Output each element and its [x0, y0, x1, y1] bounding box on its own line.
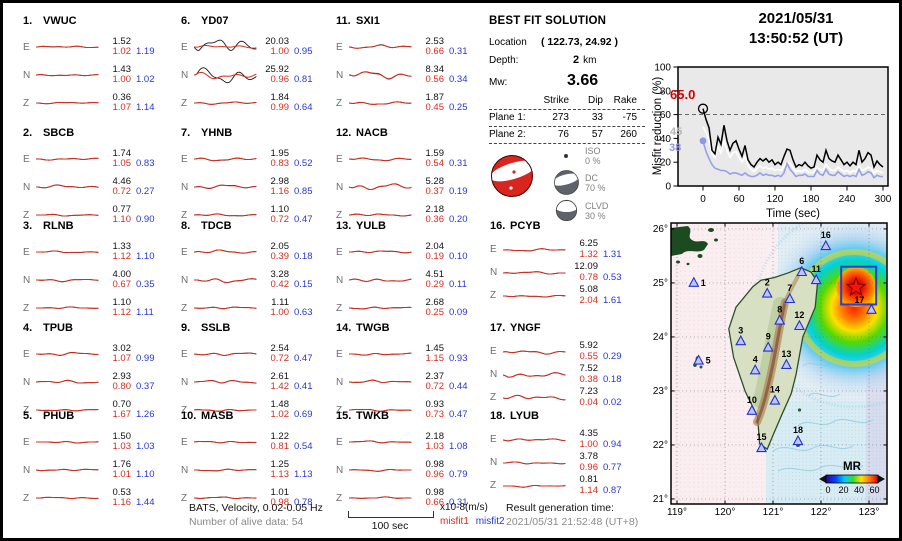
- misfit1-value: 1.07: [104, 354, 131, 365]
- misfit1-value: 0.54: [417, 159, 444, 170]
- time-scalebar: [348, 511, 434, 518]
- svg-text:60: 60: [869, 485, 879, 495]
- station-name: YD07: [201, 15, 229, 27]
- waveform-trace: [194, 33, 258, 61]
- waveform-values: 1.741.050.83: [104, 149, 155, 170]
- misfit1-value: 0.56: [417, 75, 444, 86]
- waveform-values: 2.370.720.44: [417, 372, 468, 393]
- waveform-trace: [194, 238, 258, 266]
- focal-mechanism-beachball: [489, 152, 535, 200]
- svg-text:0: 0: [665, 182, 671, 193]
- iso-symbol: [551, 151, 581, 161]
- bats-solution-figure: 1.VWUCE1.521.021.19N1.431.001.02Z0.361.0…: [0, 0, 902, 541]
- misfit1-value: 0.72: [417, 382, 444, 393]
- waveform-values: 1.331.121.10: [104, 242, 155, 263]
- misfit2-value: 1.44: [136, 498, 155, 509]
- waveform-trace: [36, 484, 100, 512]
- misfit1-value: 0.81: [262, 442, 289, 453]
- waveform-row: N1.431.001.02: [23, 61, 175, 89]
- component-label: N: [490, 457, 503, 468]
- misfit2-legend: misfit2: [476, 516, 505, 527]
- map-station-number: 10: [747, 395, 757, 405]
- svg-text:120: 120: [767, 194, 784, 205]
- strike-dip-rake-table: Strike Dip Rake Plane 1: 273 33 -75 Plan…: [489, 93, 645, 144]
- misfit2-value: 1.10: [136, 252, 155, 263]
- svg-text:120°: 120°: [715, 507, 736, 518]
- result-time-label: Result generation time:: [506, 502, 614, 514]
- station-name: VWUC: [43, 15, 77, 27]
- misfit2-value: 1.10: [136, 470, 155, 481]
- map-station-number: 14: [770, 385, 780, 395]
- waveform-values: 1.220.810.54: [262, 432, 313, 453]
- depth-label: Depth:: [489, 55, 541, 66]
- misfit1-value: 1.00: [104, 75, 131, 86]
- depth-unit: km: [583, 55, 596, 66]
- station-block: 6.YD07E20.031.000.95N25.920.960.81Z1.840…: [181, 15, 333, 117]
- component-label: N: [181, 182, 194, 193]
- component-label: E: [336, 349, 349, 360]
- filter-info: BATS, Velocity, 0.02-0.05 Hz: [189, 502, 323, 514]
- station-block: 10.MASBE1.220.810.54N1.251.131.13Z1.010.…: [181, 410, 333, 512]
- misfit2-value: 0.37: [136, 382, 155, 393]
- component-label: N: [23, 377, 36, 388]
- waveform-row: Z0.811.140.87: [490, 474, 642, 497]
- waveform-trace: [194, 456, 258, 484]
- waveform-values: 3.280.420.15: [262, 270, 313, 291]
- col-strike: Strike: [535, 95, 569, 106]
- amplitude-value: 7.52: [571, 364, 598, 375]
- waveform-row: N3.280.420.15: [181, 266, 333, 294]
- map-station-number: 1: [701, 278, 706, 288]
- component-label: E: [336, 154, 349, 165]
- station-number: 7.: [181, 127, 201, 139]
- waveform-values: 2.930.800.37: [104, 372, 155, 393]
- waveform-trace: [349, 238, 413, 266]
- station-number: 17.: [490, 322, 510, 334]
- waveform-trace: [349, 294, 413, 322]
- waveform-values: 7.230.040.02: [571, 387, 622, 408]
- station-block: 16.PCYBE6.251.321.31N12.090.780.53Z5.082…: [490, 220, 642, 307]
- waveform-row: N2.930.800.37: [23, 368, 175, 396]
- waveform-values: 7.520.380.18: [571, 364, 622, 385]
- dc-symbol: [551, 169, 581, 196]
- misfit2-value: 0.99: [136, 354, 155, 365]
- misfit2-value: 0.93: [449, 354, 468, 365]
- svg-text:122°: 122°: [811, 507, 832, 518]
- waveform-trace: [349, 266, 413, 294]
- map-station-number: 7: [787, 283, 792, 293]
- map-station-number: 18: [793, 425, 803, 435]
- component-label: E: [336, 247, 349, 258]
- component-label: N: [23, 182, 36, 193]
- waveform-row: E1.521.021.19: [23, 33, 175, 61]
- station-name: SSLB: [201, 322, 230, 334]
- panel-title: BEST FIT SOLUTION: [489, 15, 645, 27]
- misfit2-value: 1.31: [603, 250, 622, 261]
- waveform-trace: [503, 472, 567, 500]
- component-label: E: [181, 349, 194, 360]
- misfit1-value: 1.15: [417, 354, 444, 365]
- station-name: NACB: [356, 127, 388, 139]
- component-label: E: [181, 247, 194, 258]
- component-label: N: [336, 465, 349, 476]
- station-number: 14.: [336, 322, 356, 334]
- station-name: RLNB: [43, 220, 74, 232]
- misfit2-value: 0.95: [294, 47, 313, 58]
- svg-text:100: 100: [654, 63, 671, 74]
- station-name: MASB: [201, 410, 233, 422]
- misfit1-value: 1.05: [104, 159, 131, 170]
- station-block: 18.LYUBE4.351.000.94N3.780.960.77Z0.811.…: [490, 410, 642, 497]
- misfit1-value: 1.00: [262, 47, 289, 58]
- component-label: N: [336, 182, 349, 193]
- iso-pct: 0 %: [585, 156, 601, 166]
- component-label: E: [23, 437, 36, 448]
- svg-text:26°: 26°: [653, 224, 668, 235]
- waveform-trace: [36, 89, 100, 117]
- station-number: 9.: [181, 322, 201, 334]
- waveform-trace: [36, 428, 100, 456]
- station-block: 9.SSLBE2.540.720.47N2.611.420.41Z1.481.0…: [181, 322, 333, 424]
- waveform-values: 4.460.720.27: [104, 177, 155, 198]
- component-label: E: [490, 244, 503, 255]
- result-time-value: 2021/05/31 21:52:48 (UT+8): [506, 516, 638, 528]
- misfit2-value: 1.19: [136, 47, 155, 58]
- col-rake: Rake: [603, 95, 637, 106]
- waveform-row: Z7.230.040.02: [490, 386, 642, 409]
- misfit1-value: 0.99: [262, 103, 289, 114]
- station-header: 3.RLNB: [23, 220, 175, 236]
- map-canvas: 123456789101112131415161718 MR 0204060: [671, 216, 902, 504]
- misfit1-value: 1.01: [104, 470, 131, 481]
- station-block: 5.PHUBE1.501.031.03N1.761.011.10Z0.531.1…: [23, 410, 175, 512]
- map-station-number: 4: [753, 354, 758, 364]
- svg-text:20: 20: [838, 485, 848, 495]
- component-label: N: [23, 275, 36, 286]
- waveform-trace: [36, 173, 100, 201]
- component-label: E: [181, 154, 194, 165]
- station-header: 14.TWGB: [336, 322, 488, 338]
- waveform-values: 1.870.450.25: [417, 93, 468, 114]
- waveform-values: 20.031.000.95: [262, 37, 313, 58]
- map-station-number: 15: [756, 432, 766, 442]
- station-name: SBCB: [43, 127, 74, 139]
- waveform-trace: [194, 428, 258, 456]
- misfit2-value: 0.81: [294, 75, 313, 86]
- waveform-values: 1.840.990.64: [262, 93, 313, 114]
- misfit1-value: 1.16: [104, 498, 131, 509]
- amplitude-value: 4.35: [571, 429, 598, 440]
- waveform-row: N4.460.720.27: [23, 173, 175, 201]
- misfit1-value: 1.16: [262, 187, 289, 198]
- waveform-row: E2.530.660.31: [336, 33, 488, 61]
- misfit2-value: 0.29: [603, 352, 622, 363]
- svg-text:24°: 24°: [653, 332, 668, 343]
- waveform-row: Z0.531.161.44: [23, 484, 175, 512]
- waveform-trace: [349, 456, 413, 484]
- clvd-pct: 30 %: [585, 211, 606, 221]
- station-header: 17.YNGF: [490, 322, 642, 338]
- waveform-values: 1.761.011.10: [104, 460, 155, 481]
- misfit2-value: 0.85: [294, 187, 313, 198]
- misfit2-value: 0.11: [449, 280, 467, 291]
- station-name: YULB: [356, 220, 386, 232]
- map-station-number: 12: [794, 310, 804, 320]
- best-fit-solution-panel: BEST FIT SOLUTION Location ( 122.73, 24.…: [489, 15, 645, 225]
- component-label: Z: [490, 392, 503, 403]
- clvd-label: CLVD: [585, 201, 608, 211]
- misfit1-value: 0.04: [571, 398, 598, 409]
- waveform-values: 5.280.370.19: [417, 177, 468, 198]
- start-value-white: 45: [670, 126, 682, 138]
- waveform-trace: [36, 61, 100, 89]
- misfit2-value: 0.79: [449, 470, 468, 481]
- amplitude-value: 3.78: [571, 452, 598, 463]
- event-time: 13:50:52 (UT): [691, 29, 901, 49]
- component-label: E: [23, 42, 36, 53]
- misfit2-value: 0.47: [294, 354, 313, 365]
- misfit2-value: 0.27: [136, 187, 155, 198]
- misfit1-value: 0.72: [104, 187, 131, 198]
- station-header: 15.TWKB: [336, 410, 488, 426]
- waveform-row: E1.741.050.83: [23, 145, 175, 173]
- waveform-row: Z2.680.250.09: [336, 294, 488, 322]
- waveform-trace: [349, 484, 413, 512]
- misfit2-value: 0.83: [136, 159, 155, 170]
- misfit1-value: 1.00: [262, 308, 289, 319]
- station-number: 1.: [23, 15, 43, 27]
- component-label: E: [336, 437, 349, 448]
- misfit2-value: 0.19: [449, 187, 468, 198]
- start-value-blue: 38: [669, 142, 681, 154]
- map-station-number: 13: [781, 349, 791, 359]
- waveform-values: 12.090.780.53: [571, 262, 622, 283]
- component-label: E: [23, 154, 36, 165]
- misfit2-value: 0.09: [449, 308, 468, 319]
- waveform-values: 1.950.830.52: [262, 149, 313, 170]
- svg-text:60: 60: [660, 110, 672, 121]
- waveform-row: N5.280.370.19: [336, 173, 488, 201]
- waveform-row: E1.950.830.52: [181, 145, 333, 173]
- amplitude-value: 5.92: [571, 341, 598, 352]
- waveform-values: 2.540.720.47: [262, 344, 313, 365]
- misfit1-value: 0.42: [262, 280, 289, 291]
- component-label: Z: [181, 98, 194, 109]
- misfit2-value: 0.25: [449, 103, 468, 114]
- moment-decomposition: ISO 0 % DC: [551, 146, 608, 225]
- misfit2-value: 0.34: [449, 75, 468, 86]
- waveform-row: N8.340.560.34: [336, 61, 488, 89]
- amplitude-value: 12.09: [571, 262, 598, 273]
- waveform-trace: [36, 238, 100, 266]
- component-label: E: [23, 349, 36, 360]
- waveform-values: 4.351.000.94: [571, 429, 622, 450]
- waveform-row: E3.021.070.99: [23, 340, 175, 368]
- waveform-values: 0.361.071.14: [104, 93, 155, 114]
- misfit2-value: 0.31: [449, 47, 468, 58]
- waveform-row: Z0.361.071.14: [23, 89, 175, 117]
- waveform-trace: [349, 340, 413, 368]
- station-block: 17.YNGFE5.920.550.29N7.520.380.18Z7.230.…: [490, 322, 642, 409]
- waveform-values: 0.980.960.79: [417, 460, 468, 481]
- map-station-number: 3: [738, 325, 743, 335]
- waveform-row: Z1.101.121.11: [23, 294, 175, 322]
- misfit2-value: 1.08: [449, 442, 468, 453]
- waveform-trace: [194, 340, 258, 368]
- waveform-values: 0.811.140.87: [571, 475, 622, 496]
- waveform-values: 2.050.390.18: [262, 242, 313, 263]
- waveform-row: E1.220.810.54: [181, 428, 333, 456]
- misfit2-value: 0.54: [294, 442, 313, 453]
- waveform-values: 1.251.131.13: [262, 460, 313, 481]
- alive-data-count: Number of alive data: 54: [189, 516, 303, 528]
- misfit1-value: 2.04: [571, 296, 598, 307]
- blue-start-marker: [700, 137, 707, 144]
- dc-label: DC: [585, 173, 598, 183]
- scalebar-label: 100 sec: [348, 520, 432, 532]
- misfit1-value: 0.55: [571, 352, 598, 363]
- misfit2-value: 0.02: [603, 398, 622, 409]
- waveform-row: E2.540.720.47: [181, 340, 333, 368]
- waveform-trace: [36, 340, 100, 368]
- misfit1-value: 0.72: [262, 354, 289, 365]
- waveform-row: E1.501.031.03: [23, 428, 175, 456]
- station-block: 2.SBCBE1.741.050.83N4.460.720.27Z0.771.1…: [23, 127, 175, 229]
- waveform-values: 0.531.161.44: [104, 488, 155, 509]
- component-label: E: [181, 437, 194, 448]
- waveform-values: 3.021.070.99: [104, 344, 155, 365]
- misfit1-value: 0.67: [104, 280, 131, 291]
- misfit2-value: 1.03: [136, 442, 155, 453]
- component-label: N: [181, 275, 194, 286]
- component-label: Z: [23, 210, 36, 221]
- component-label: N: [490, 267, 503, 278]
- waveform-row: N0.980.960.79: [336, 456, 488, 484]
- waveform-values: 2.040.190.10: [417, 242, 468, 263]
- waveform-values: 25.920.960.81: [262, 65, 313, 86]
- misfit-reduction-chart: 020406080100060120180240300Time (sec)65.…: [643, 53, 902, 221]
- misfit1-value: 0.45: [417, 103, 444, 114]
- station-name: YNGF: [510, 322, 541, 334]
- amplitude-value: 6.25: [571, 239, 598, 250]
- misfit2-value: 1.11: [136, 308, 154, 319]
- waveform-values: 5.082.041.61: [571, 285, 622, 306]
- misfit1-value: 1.03: [417, 442, 444, 453]
- station-header: 18.LYUB: [490, 410, 642, 426]
- waveform-values: 2.181.031.08: [417, 432, 468, 453]
- component-label: N: [181, 377, 194, 388]
- amplitude-value: 5.08: [571, 285, 598, 296]
- misfit1-legend: misfit1: [440, 516, 469, 527]
- station-name: TWKB: [356, 410, 389, 422]
- waveform-trace: [349, 89, 413, 117]
- misfit1-value: 0.96: [417, 470, 444, 481]
- waveform-trace: [349, 61, 413, 89]
- table-row: Plane 2: 76 57 260: [489, 127, 645, 144]
- svg-text:21°: 21°: [653, 494, 668, 505]
- amplitude-value: 0.81: [571, 475, 598, 486]
- map-station-number: 9: [766, 332, 771, 342]
- svg-text:123°: 123°: [859, 507, 880, 518]
- waveform-values: 1.431.001.02: [104, 65, 155, 86]
- misfit1-value: 0.39: [262, 252, 289, 263]
- misfit1-value: 0.19: [417, 252, 444, 263]
- misfit1-value: 0.25: [417, 308, 444, 319]
- misfit2-value: 1.13: [294, 470, 313, 481]
- misfit1-value: 0.37: [417, 187, 444, 198]
- waveform-trace: [503, 384, 567, 412]
- mw-value: 3.66: [567, 72, 598, 90]
- waveform-trace: [349, 368, 413, 396]
- misfit1-value: 1.32: [571, 250, 598, 261]
- station-name: SXI1: [356, 15, 380, 27]
- misfit1-value: 1.02: [104, 47, 131, 58]
- component-label: E: [490, 346, 503, 357]
- svg-text:0: 0: [700, 194, 706, 205]
- component-label: E: [181, 42, 194, 53]
- waveform-values: 2.530.660.31: [417, 37, 468, 58]
- dc-pct: 70 %: [585, 183, 606, 193]
- waveform-row: N1.251.131.13: [181, 456, 333, 484]
- svg-text:23°: 23°: [653, 386, 668, 397]
- station-header: 10.MASB: [181, 410, 333, 426]
- station-number: 5.: [23, 410, 43, 422]
- station-name: LYUB: [510, 410, 539, 422]
- depth-value: 2: [573, 54, 579, 66]
- waveform-trace: [194, 89, 258, 117]
- start-value-best: 65.0: [670, 87, 695, 102]
- waveform-trace: [349, 173, 413, 201]
- misfit1-value: 1.14: [571, 486, 598, 497]
- misfit2-value: 0.53: [603, 273, 622, 284]
- component-label: N: [336, 275, 349, 286]
- map-station-number: 6: [799, 256, 804, 266]
- misfit2-value: 0.18: [294, 252, 313, 263]
- clvd-symbol: [551, 199, 581, 222]
- colorbar-title: MR: [843, 461, 862, 473]
- component-label: E: [336, 42, 349, 53]
- station-map: 123456789101112131415161718 MR 020406026…: [648, 216, 902, 518]
- component-label: Z: [23, 303, 36, 314]
- station-header: 2.SBCB: [23, 127, 175, 143]
- misfit1-value: 0.83: [262, 159, 289, 170]
- waveform-row: N4.510.290.11: [336, 266, 488, 294]
- component-label: Z: [181, 210, 194, 221]
- station-number: 8.: [181, 220, 201, 232]
- waveform-values: 2.611.420.41: [262, 372, 313, 393]
- misfit1-value: 1.03: [104, 442, 131, 453]
- location-label: Location: [489, 37, 541, 48]
- component-label: Z: [23, 493, 36, 504]
- station-header: 6.YD07: [181, 15, 333, 31]
- waveform-values: 1.590.540.31: [417, 149, 468, 170]
- station-block: 12.NACBE1.590.540.31N5.280.370.19Z2.180.…: [336, 127, 488, 229]
- misfit1-value: 0.29: [417, 280, 444, 291]
- waveform-values: 4.000.670.35: [104, 270, 155, 291]
- waveform-row: Z1.870.450.25: [336, 89, 488, 117]
- component-label: Z: [490, 480, 503, 491]
- station-block: 3.RLNBE1.331.121.10N4.000.670.35Z1.101.1…: [23, 220, 175, 322]
- component-label: Z: [336, 303, 349, 314]
- waveform-row: E2.050.390.18: [181, 238, 333, 266]
- event-date: 2021/05/31: [691, 9, 901, 29]
- misfit1-value: 0.78: [571, 273, 598, 284]
- misfit2-value: 1.02: [136, 75, 155, 86]
- svg-text:20: 20: [660, 158, 672, 169]
- station-number: 6.: [181, 15, 201, 27]
- station-number: 3.: [23, 220, 43, 232]
- component-label: Z: [490, 290, 503, 301]
